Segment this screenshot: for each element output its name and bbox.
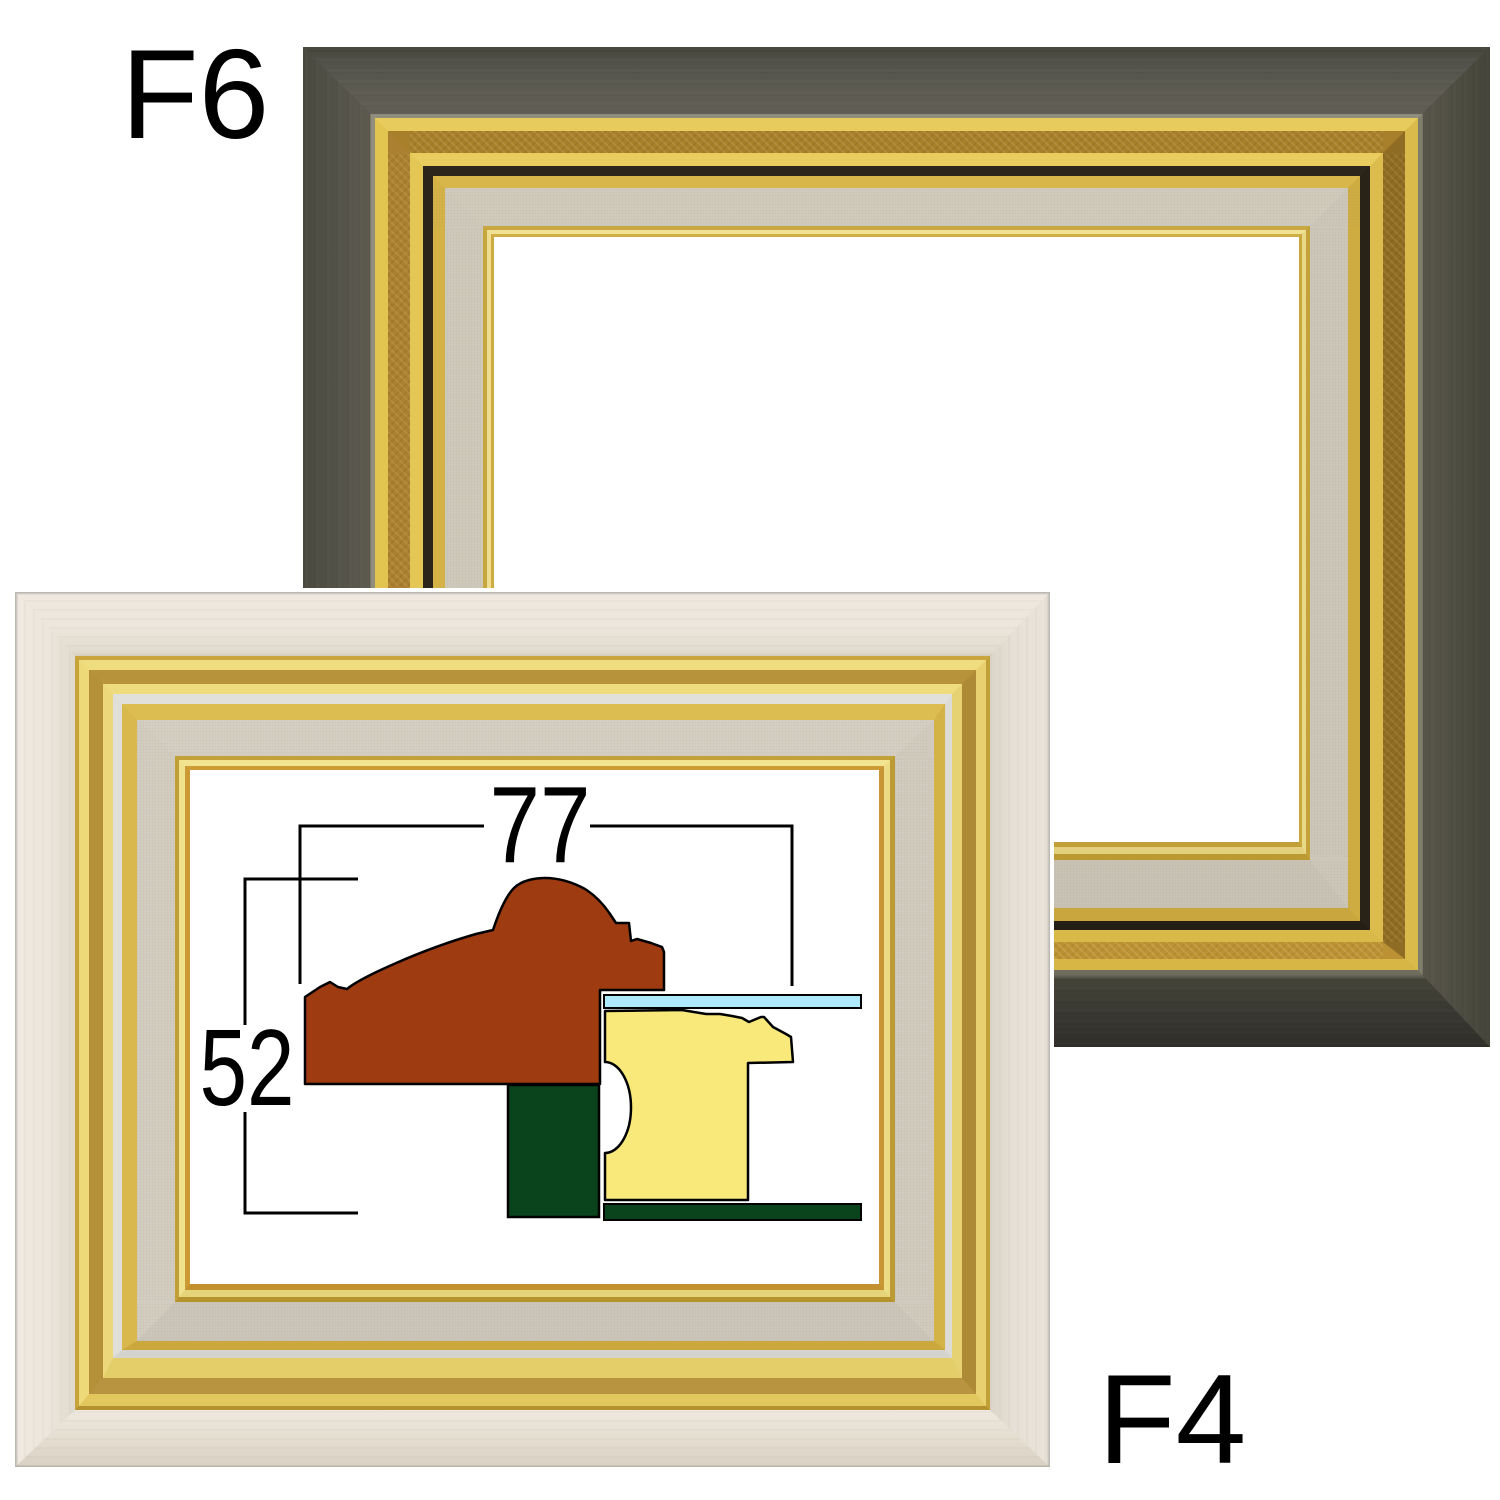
svg-text:52: 52: [200, 1007, 295, 1129]
svg-text:77: 77: [490, 770, 591, 886]
